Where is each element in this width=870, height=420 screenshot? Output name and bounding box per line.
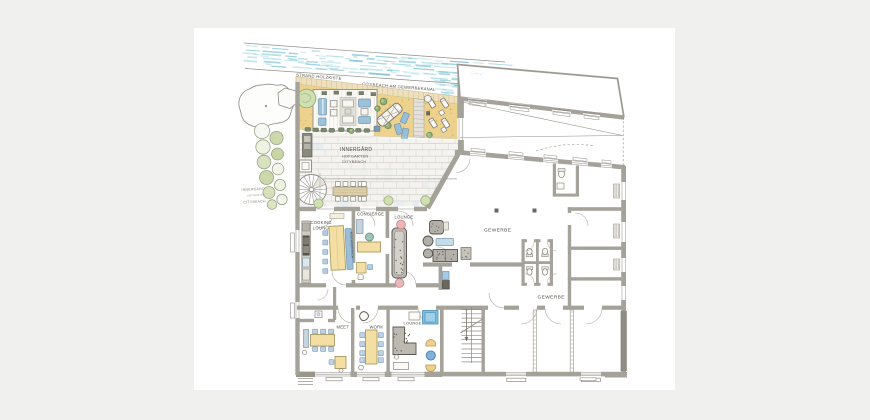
svg-text:GEWERBE: GEWERBE — [484, 228, 511, 234]
svg-text:CITYBEACH: CITYBEACH — [342, 160, 366, 164]
svg-text:GEWERBE: GEWERBE — [538, 295, 565, 301]
svg-text:LOUNGE: LOUNGE — [395, 215, 414, 220]
svg-text:COOKING: COOKING — [311, 220, 332, 225]
svg-text:CONCIÉRGE: CONCIÉRGE — [357, 212, 384, 217]
svg-text:HOFGARTEN: HOFGARTEN — [342, 155, 368, 159]
svg-text:WORK: WORK — [370, 325, 384, 330]
svg-text:MEET: MEET — [337, 325, 350, 330]
svg-text:INNERGÅRD: INNERGÅRD — [340, 146, 372, 153]
svg-text:LOUNGE: LOUNGE — [404, 321, 422, 326]
